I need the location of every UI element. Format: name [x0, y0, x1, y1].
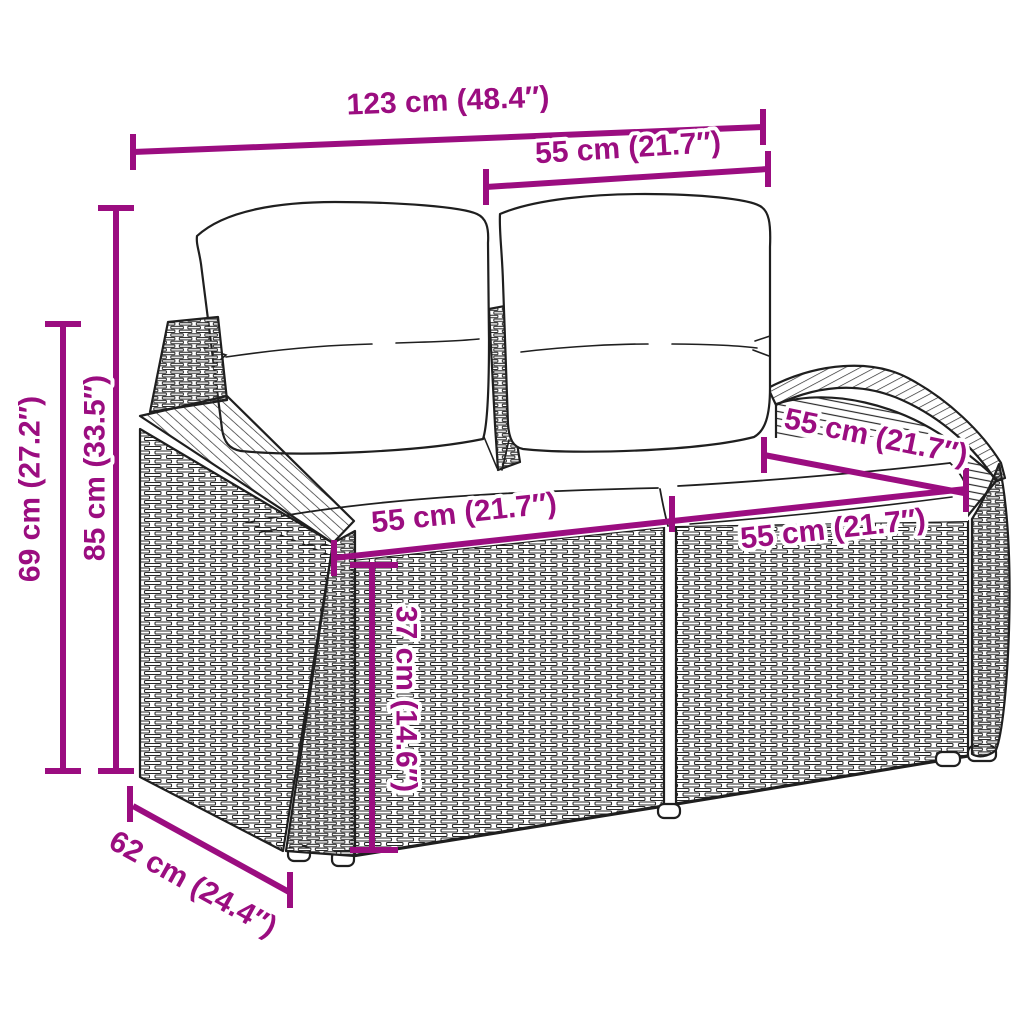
dim-seat-height-label: 37 cm (14.6″): [390, 606, 423, 792]
dim-armrest-height: 69 cm (27.2″): [14, 324, 82, 771]
dim-backrest-width-line: [486, 169, 768, 187]
dim-total-height: 85 cm (33.5″): [79, 208, 135, 771]
seat-base-right: [676, 521, 968, 804]
dimension-diagram: 123 cm (48.4″) 55 cm (21.7″) 55 cm (21.7…: [0, 0, 1024, 1024]
diagram-canvas: 123 cm (48.4″) 55 cm (21.7″) 55 cm (21.7…: [0, 0, 1024, 1024]
dim-armrest-height-label: 69 cm (27.2″): [14, 396, 47, 582]
dim-total-height-label: 85 cm (33.5″): [79, 375, 112, 561]
dim-total-width-label: 123 cm (48.4″): [346, 80, 550, 121]
right-armrest-outer: [972, 464, 1010, 756]
sofa-foot: [936, 752, 960, 766]
sofa-foot: [658, 804, 680, 818]
back-cushion-right: [500, 194, 770, 452]
